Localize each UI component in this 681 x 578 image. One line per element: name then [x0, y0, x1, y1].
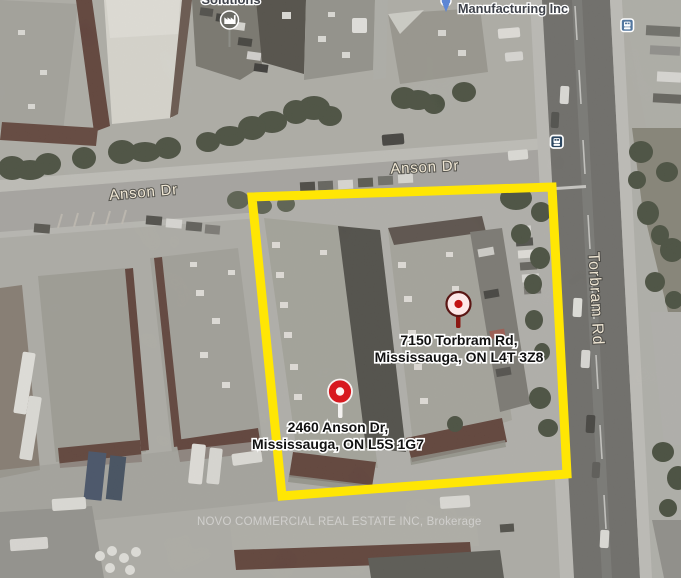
- svg-text:Anson Dr: Anson Dr: [390, 157, 460, 178]
- svg-text:2460 Anson Dr,: 2460 Anson Dr,: [288, 419, 389, 435]
- svg-text:NOVO COMMERCIAL REAL ESTATE IN: NOVO COMMERCIAL REAL ESTATE INC, Brokera…: [197, 516, 481, 528]
- svg-text:Solutions: Solutions: [201, 0, 260, 7]
- svg-text:Mississauga, ON L5S 1G7: Mississauga, ON L5S 1G7: [252, 436, 424, 452]
- svg-text:Mississauga, ON L4T 3Z8: Mississauga, ON L4T 3Z8: [375, 349, 544, 365]
- svg-text:Manufacturing Inc: Manufacturing Inc: [458, 1, 568, 16]
- svg-text:7150 Torbram Rd,: 7150 Torbram Rd,: [400, 332, 517, 348]
